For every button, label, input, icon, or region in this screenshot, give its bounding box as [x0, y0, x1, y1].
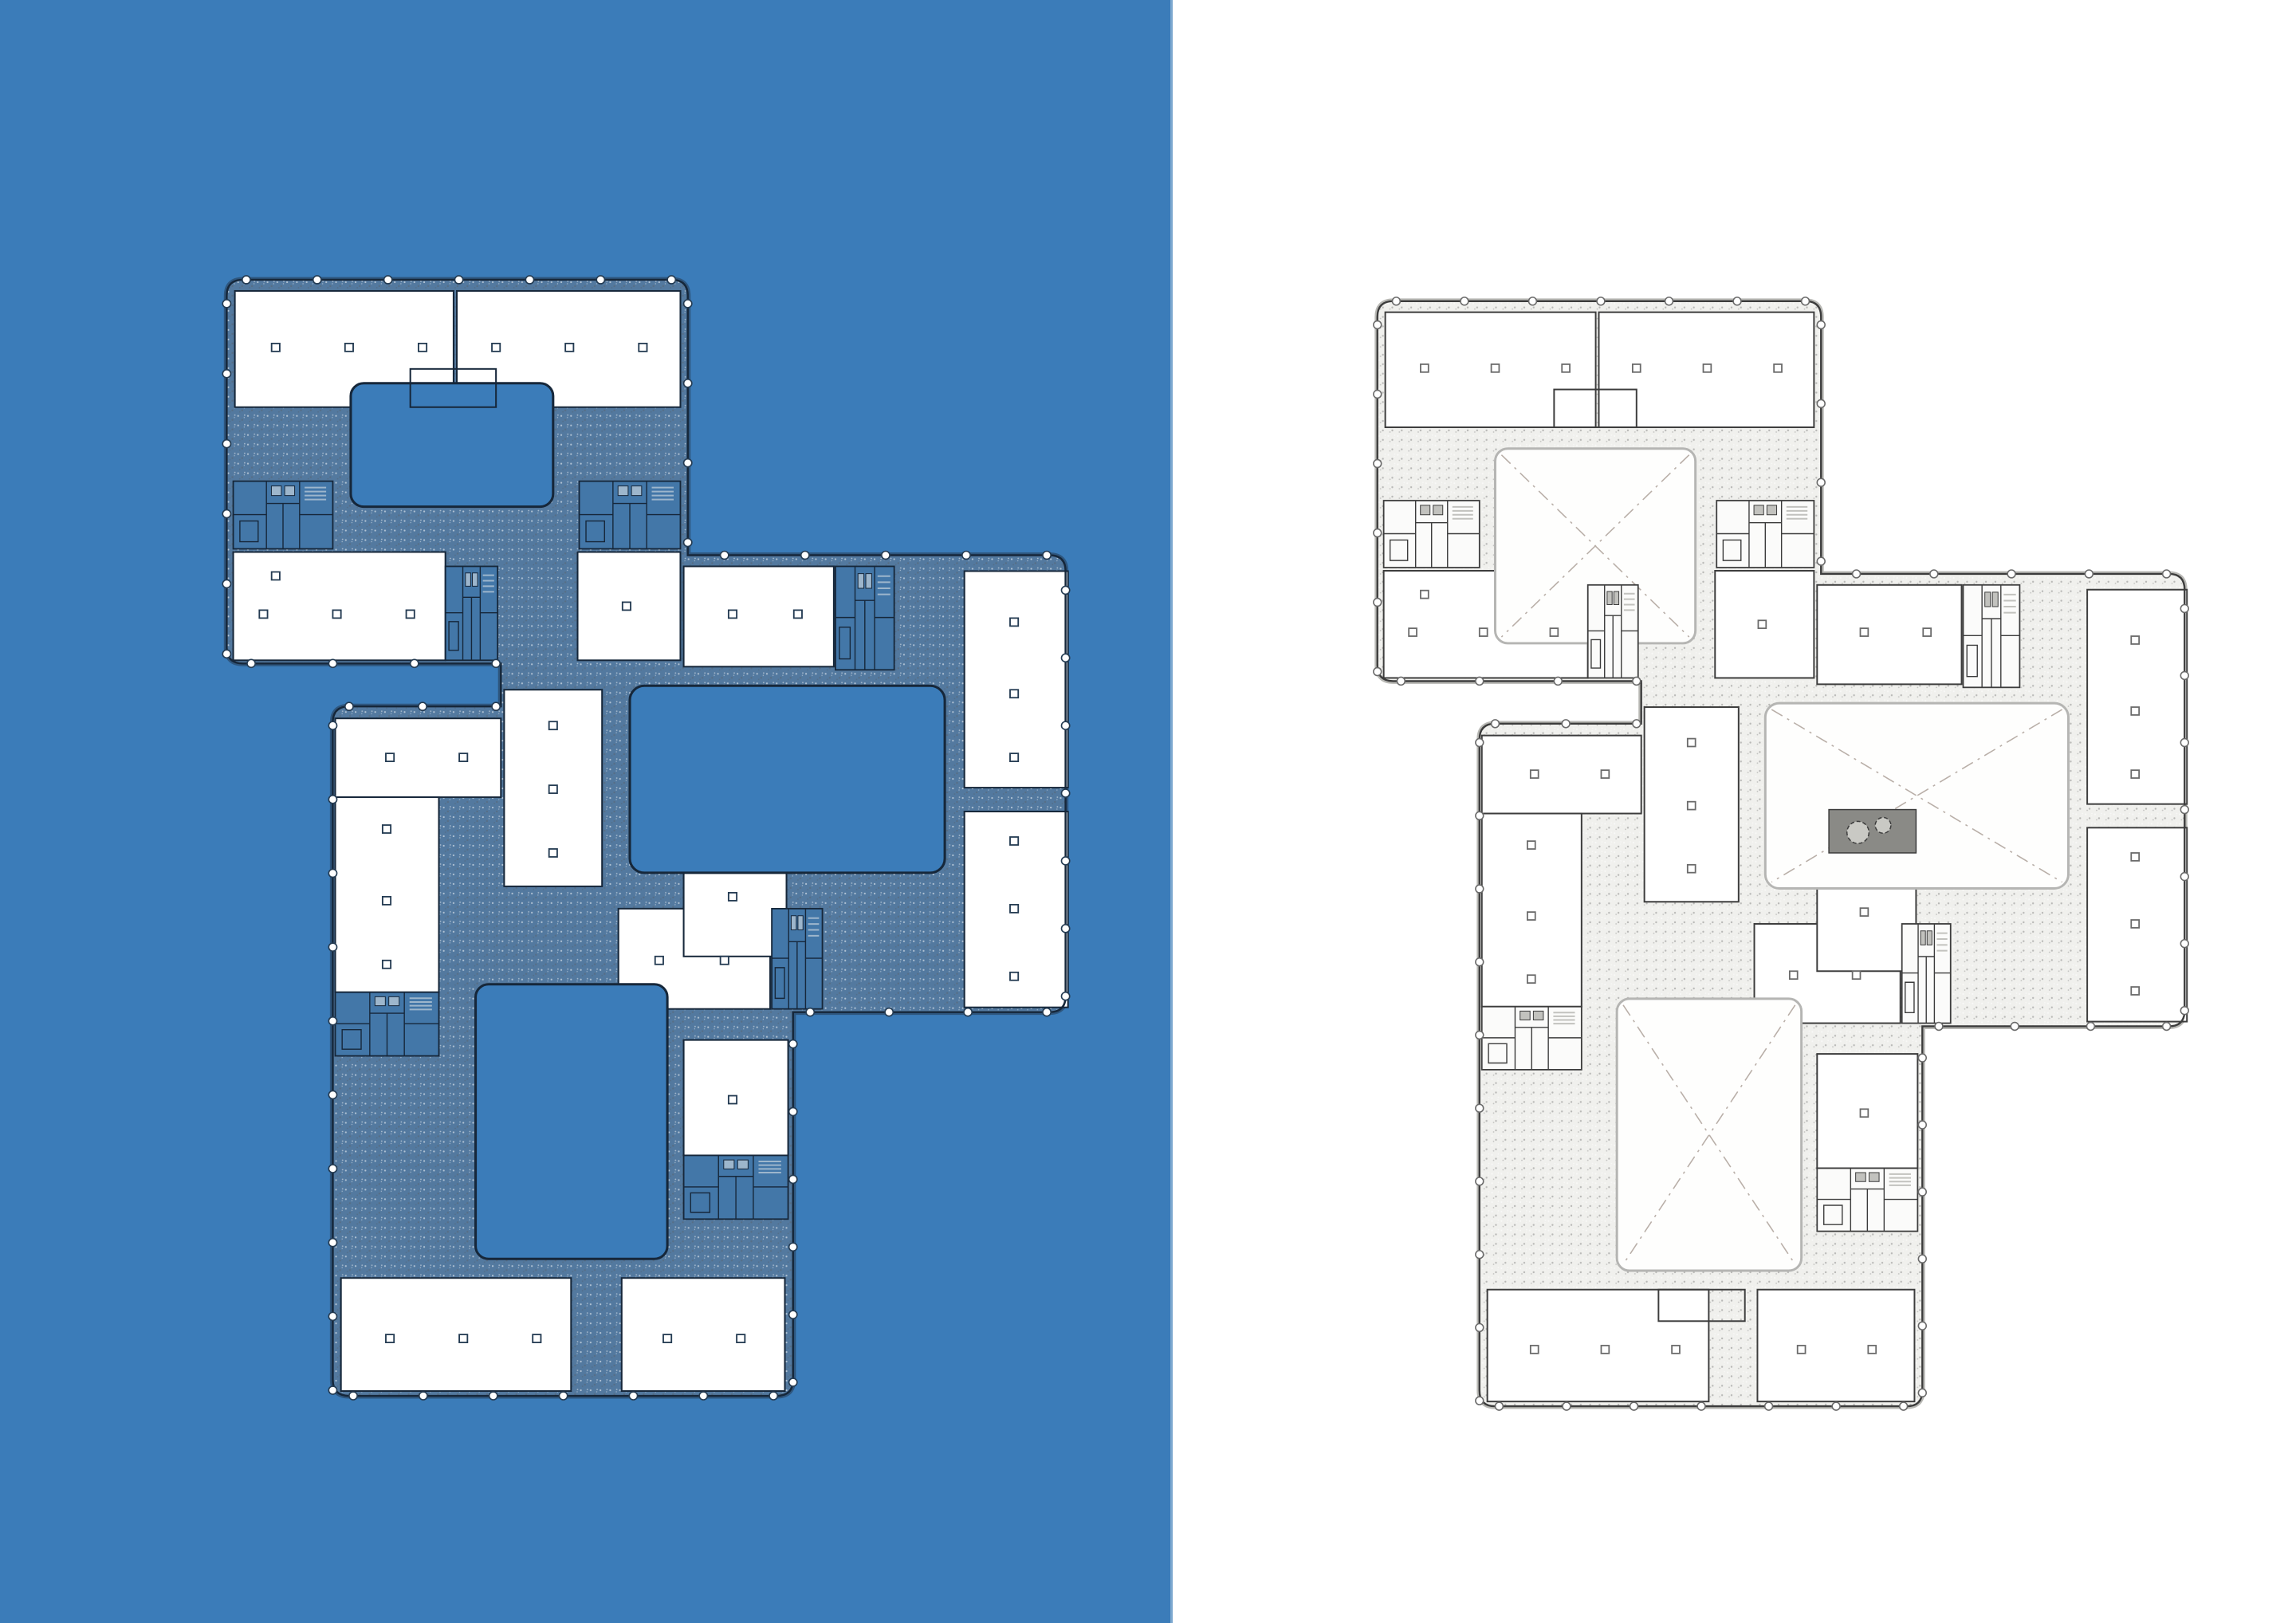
screenshot-root — [0, 0, 2296, 1623]
blueprint-panel — [0, 0, 1173, 1623]
line-drawing-panel — [1173, 0, 2296, 1623]
floor-plan-line-drawing — [1365, 289, 2198, 1413]
floor-plan-blueprint — [214, 267, 1079, 1402]
